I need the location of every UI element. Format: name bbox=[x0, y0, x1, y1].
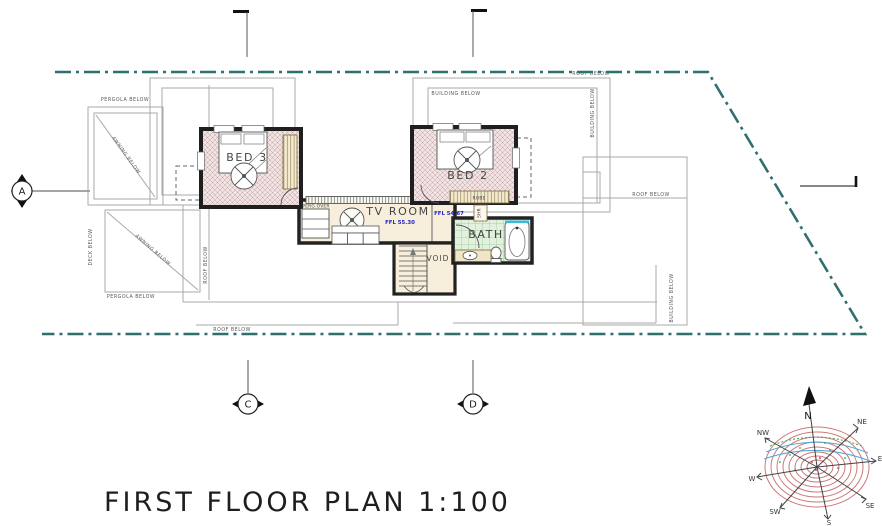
grid-a-label: A bbox=[19, 187, 26, 198]
bed3-ceiling-fan-icon bbox=[231, 163, 257, 189]
perg-over-label: PERG OVER bbox=[302, 204, 329, 210]
building-below-east2-label: BUILDING BELOW bbox=[669, 273, 675, 322]
tv-room-label: TV ROOM bbox=[365, 205, 429, 218]
compass-n: N bbox=[804, 411, 811, 422]
void-label: VOID bbox=[427, 254, 450, 263]
tv-sofa bbox=[332, 226, 379, 244]
compass-ne: NE bbox=[857, 418, 867, 426]
floor-plan-drawing: BED 3 BED 2 TV ROOM FFL 55.30 FFL 54.67 … bbox=[0, 0, 882, 526]
building-below-top-label: BUILDING BELOW bbox=[431, 91, 480, 97]
roof-below-right-label: ROOF BELOW bbox=[632, 192, 670, 198]
bath-toilet-icon bbox=[491, 247, 501, 263]
section-marker-right bbox=[800, 176, 856, 187]
section-marker-c-top bbox=[233, 12, 249, 58]
compass-se: SE bbox=[866, 502, 875, 510]
compass-e: E bbox=[878, 455, 882, 463]
compass-rose: N NE E SE S SW W NW bbox=[749, 386, 882, 526]
north-arrow-icon bbox=[803, 386, 816, 406]
plan-title: FIRST FLOOR PLAN 1:100 bbox=[104, 487, 511, 518]
grid-d-label: D bbox=[469, 400, 477, 411]
bath-tub bbox=[505, 222, 529, 260]
ffl-hall-label: FFL 54.67 bbox=[434, 211, 464, 217]
awning-below-upper-label: AWNING BELOW bbox=[110, 135, 141, 175]
compass-w: W bbox=[749, 475, 756, 483]
grid-marker-a: A bbox=[11, 174, 90, 208]
roof-below-bottom-label: ROOF BELOW bbox=[213, 327, 251, 333]
robe-label: ROBE bbox=[472, 196, 485, 202]
shr-label: SHR bbox=[477, 208, 483, 218]
compass-sw: SW bbox=[769, 508, 780, 516]
grid-marker-d: D bbox=[457, 360, 489, 414]
pergola-below-bottom-label: PERGOLA BELOW bbox=[107, 294, 155, 300]
bed2-label: BED 2 bbox=[447, 169, 488, 182]
bath-basin bbox=[455, 250, 491, 262]
compass-nw: NW bbox=[757, 429, 769, 437]
grid-marker-c: C bbox=[232, 360, 264, 414]
compass-sunpath bbox=[764, 437, 870, 461]
bath-label: BATH bbox=[468, 228, 504, 241]
floor-plan-sheet: BED 3 BED 2 TV ROOM FFL 55.30 FFL 54.67 … bbox=[0, 0, 882, 526]
grid-c-label: C bbox=[245, 400, 252, 411]
tv-cabinet bbox=[302, 209, 329, 238]
awning-below-lower-label: AWNING BELOW bbox=[134, 233, 172, 267]
ffl-tv-label: FFL 55.30 bbox=[385, 220, 415, 226]
pergola-below-top-label: PERGOLA BELOW bbox=[101, 97, 149, 103]
compass-s: S bbox=[827, 519, 832, 526]
roof-below-left-label: ROOF BELOW bbox=[203, 246, 209, 284]
section-marker-d-top bbox=[471, 11, 487, 58]
bed3-label: BED 3 bbox=[226, 151, 267, 164]
deck-below-label: DECK BELOW bbox=[88, 228, 94, 265]
bed3-wardrobe bbox=[283, 135, 297, 189]
bath-shower-screen bbox=[505, 221, 529, 224]
building-below-east1-label: BUILDING BELOW bbox=[590, 88, 596, 137]
